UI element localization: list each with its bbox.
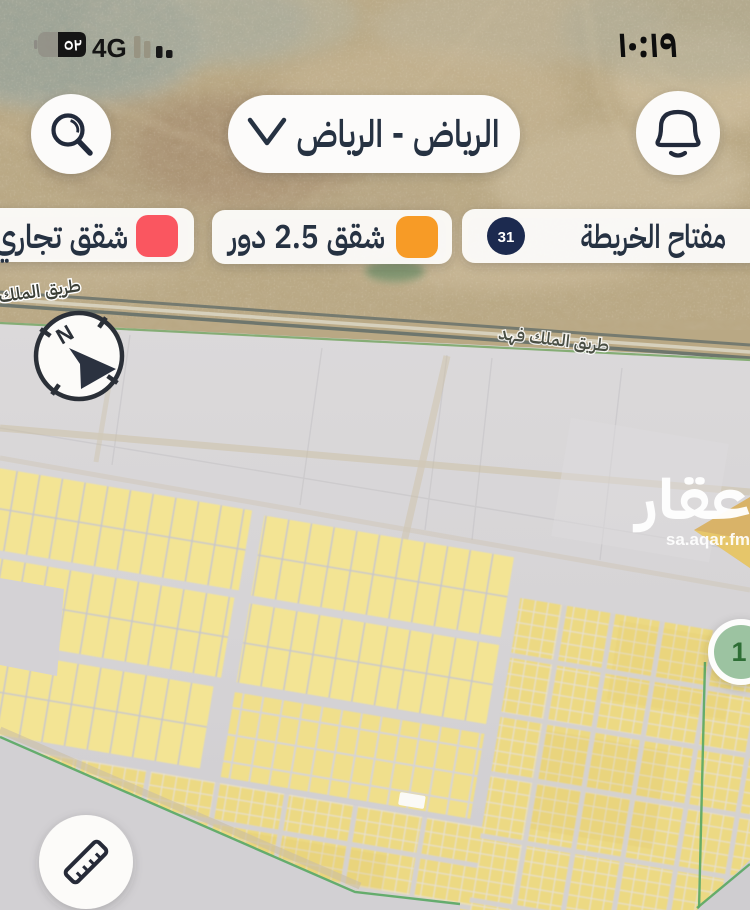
svg-text:sa.aqar.fm: sa.aqar.fm [666,530,750,549]
svg-text:1: 1 [731,637,746,667]
svg-text:31: 31 [498,229,515,246]
svg-text:4G: 4G [92,33,127,63]
